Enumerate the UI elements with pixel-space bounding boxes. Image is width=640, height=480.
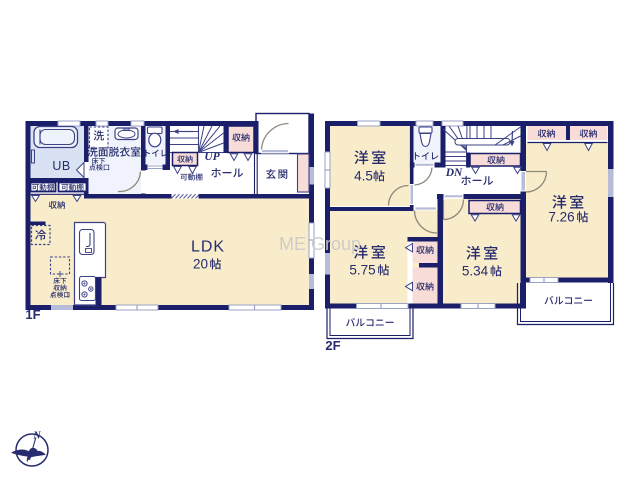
svg-text:5.34: 5.34 (462, 264, 489, 279)
svg-text:4.5: 4.5 (354, 169, 373, 184)
svg-text:7.26: 7.26 (548, 210, 574, 225)
svg-text:5.75: 5.75 (349, 263, 375, 278)
svg-text:DN: DN (445, 167, 463, 179)
svg-text:20: 20 (193, 257, 208, 272)
svg-text:UB: UB (52, 159, 70, 173)
svg-text:ME Group: ME Group (279, 234, 361, 254)
svg-text:1F: 1F (25, 307, 40, 322)
svg-text:2F: 2F (325, 338, 340, 353)
svg-text:UP: UP (204, 151, 220, 163)
svg-text:): ) (66, 291, 68, 298)
svg-text:N: N (32, 431, 41, 442)
svg-text:LDK: LDK (191, 239, 225, 256)
